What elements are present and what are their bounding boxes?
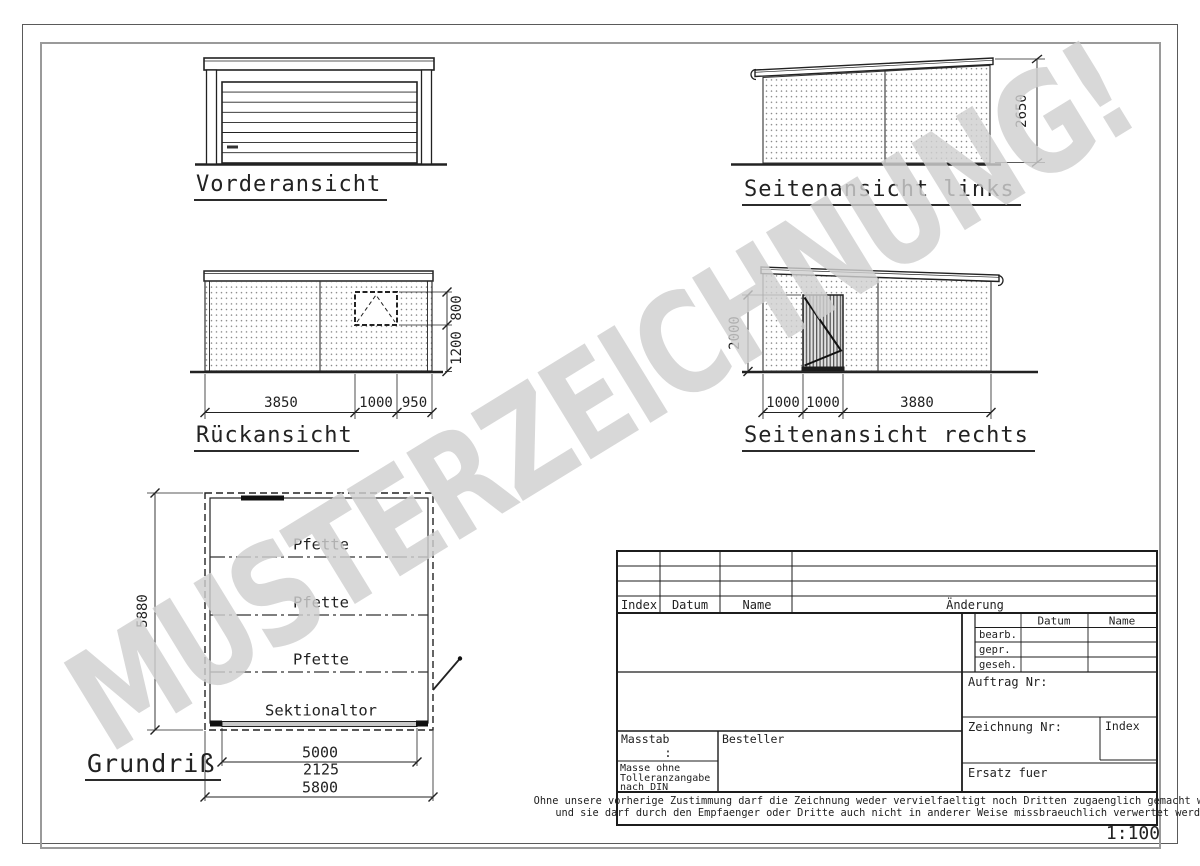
plan-door-label: Sektionaltor <box>265 703 377 719</box>
drawing-no-label: Zeichnung Nr: <box>968 721 1062 733</box>
order-no-label: Auftrag Nr: <box>968 676 1047 688</box>
dim-plan-5880: 5880 <box>136 594 150 628</box>
dim-rear-1000: 1000 <box>359 396 393 410</box>
tolerance-note-line3: nach DIN <box>620 783 668 793</box>
view-label-side-left: Seitenansicht links <box>742 179 1021 206</box>
rev-header-aenderung: Änderung <box>946 599 1004 611</box>
view-label-plan: Grundriß <box>85 751 221 781</box>
dim-plan-2125: 2125 <box>303 763 339 778</box>
leader-line <box>433 659 460 691</box>
view-label-rear: Rückansicht <box>194 425 359 452</box>
approval-row-gepr: gepr. <box>979 645 1011 656</box>
plan-purlin-label-3: Pfette <box>293 652 349 668</box>
dim-rear-950: 950 <box>402 396 427 410</box>
disclaimer-line1: Ohne unsere vorherige Zustimmung darf di… <box>534 796 1200 806</box>
dim-rear-3850: 3850 <box>264 396 298 410</box>
rev-header-datum: Datum <box>672 599 708 611</box>
plan-purlin-label-2: Pfette <box>293 595 349 611</box>
sheet-scale: 1:100 <box>1106 825 1160 843</box>
dim-right-3880: 3880 <box>900 396 934 410</box>
index-cell-label: Index <box>1105 721 1140 733</box>
drawing-sheet: { "watermark": "MUSTERZEICHNUNG!", "scal… <box>0 0 1200 866</box>
dim-parapet-1200: 1200 <box>450 331 464 365</box>
approval-header-name: Name <box>1109 615 1136 626</box>
disclaimer-line2: und sie darf durch den Empfaenger oder D… <box>555 807 1200 817</box>
approval-row-geseh: geseh. <box>979 660 1017 671</box>
customer-label: Besteller <box>722 734 784 746</box>
view-label-side-right: Seitenansicht rechts <box>742 425 1035 452</box>
dim-plan-5800: 5800 <box>302 780 338 795</box>
scale-value: : <box>664 747 671 759</box>
view-front <box>195 58 447 165</box>
approval-row-bearb: bearb. <box>979 630 1017 641</box>
plan-sectional-door <box>222 722 417 727</box>
dim-right-1000a: 1000 <box>766 396 800 410</box>
replacement-label: Ersatz fuer <box>968 767 1047 779</box>
plan-purlin-label-1: Pfette <box>293 537 349 553</box>
scale-label: Masstab <box>621 734 669 746</box>
rev-header-name: Name <box>743 599 772 611</box>
dim-door-2000: 2000 <box>728 316 742 350</box>
view-label-front: Vorderansicht <box>194 174 387 201</box>
window <box>355 292 397 325</box>
approval-header-datum: Datum <box>1037 615 1070 626</box>
view-side-left <box>731 55 1045 167</box>
rev-header-index: Index <box>621 599 657 611</box>
dim-height-2650: 2650 <box>1015 94 1029 128</box>
plan-beam-mark <box>241 496 284 501</box>
title-block-lines <box>617 551 1157 825</box>
dim-plan-5000: 5000 <box>302 745 338 760</box>
door-logo-mark <box>227 146 238 149</box>
dim-window-800: 800 <box>450 295 464 320</box>
dim-right-1000b: 1000 <box>806 396 840 410</box>
